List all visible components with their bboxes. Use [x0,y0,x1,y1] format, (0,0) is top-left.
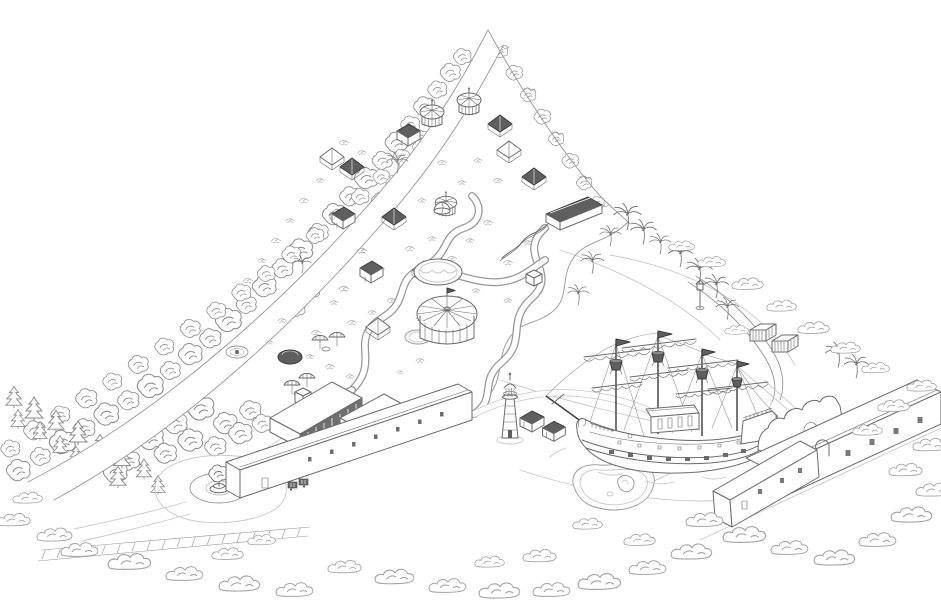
park-map-illustration [0,0,941,600]
square-pavilion [522,168,546,190]
park-map-canvas [0,0,941,600]
water-slide-pavilion [500,197,602,261]
cabin [360,261,383,283]
beach-hut [543,421,566,441]
wave-pool [414,259,462,285]
street-lamp [696,280,704,310]
storage-container [772,335,798,352]
parasol [299,373,315,387]
parasol [329,332,345,346]
beach-kiosk [526,270,542,286]
square-pavilion [488,115,512,137]
round-dark-ride [278,350,302,364]
amusement-park-grounds [226,88,602,407]
fountain-monument [209,465,228,493]
storage-container [750,324,776,341]
square-pavilion [497,141,521,163]
teacup-ride [226,346,248,358]
beach-hut [520,411,544,432]
grand-carousel [417,288,477,344]
